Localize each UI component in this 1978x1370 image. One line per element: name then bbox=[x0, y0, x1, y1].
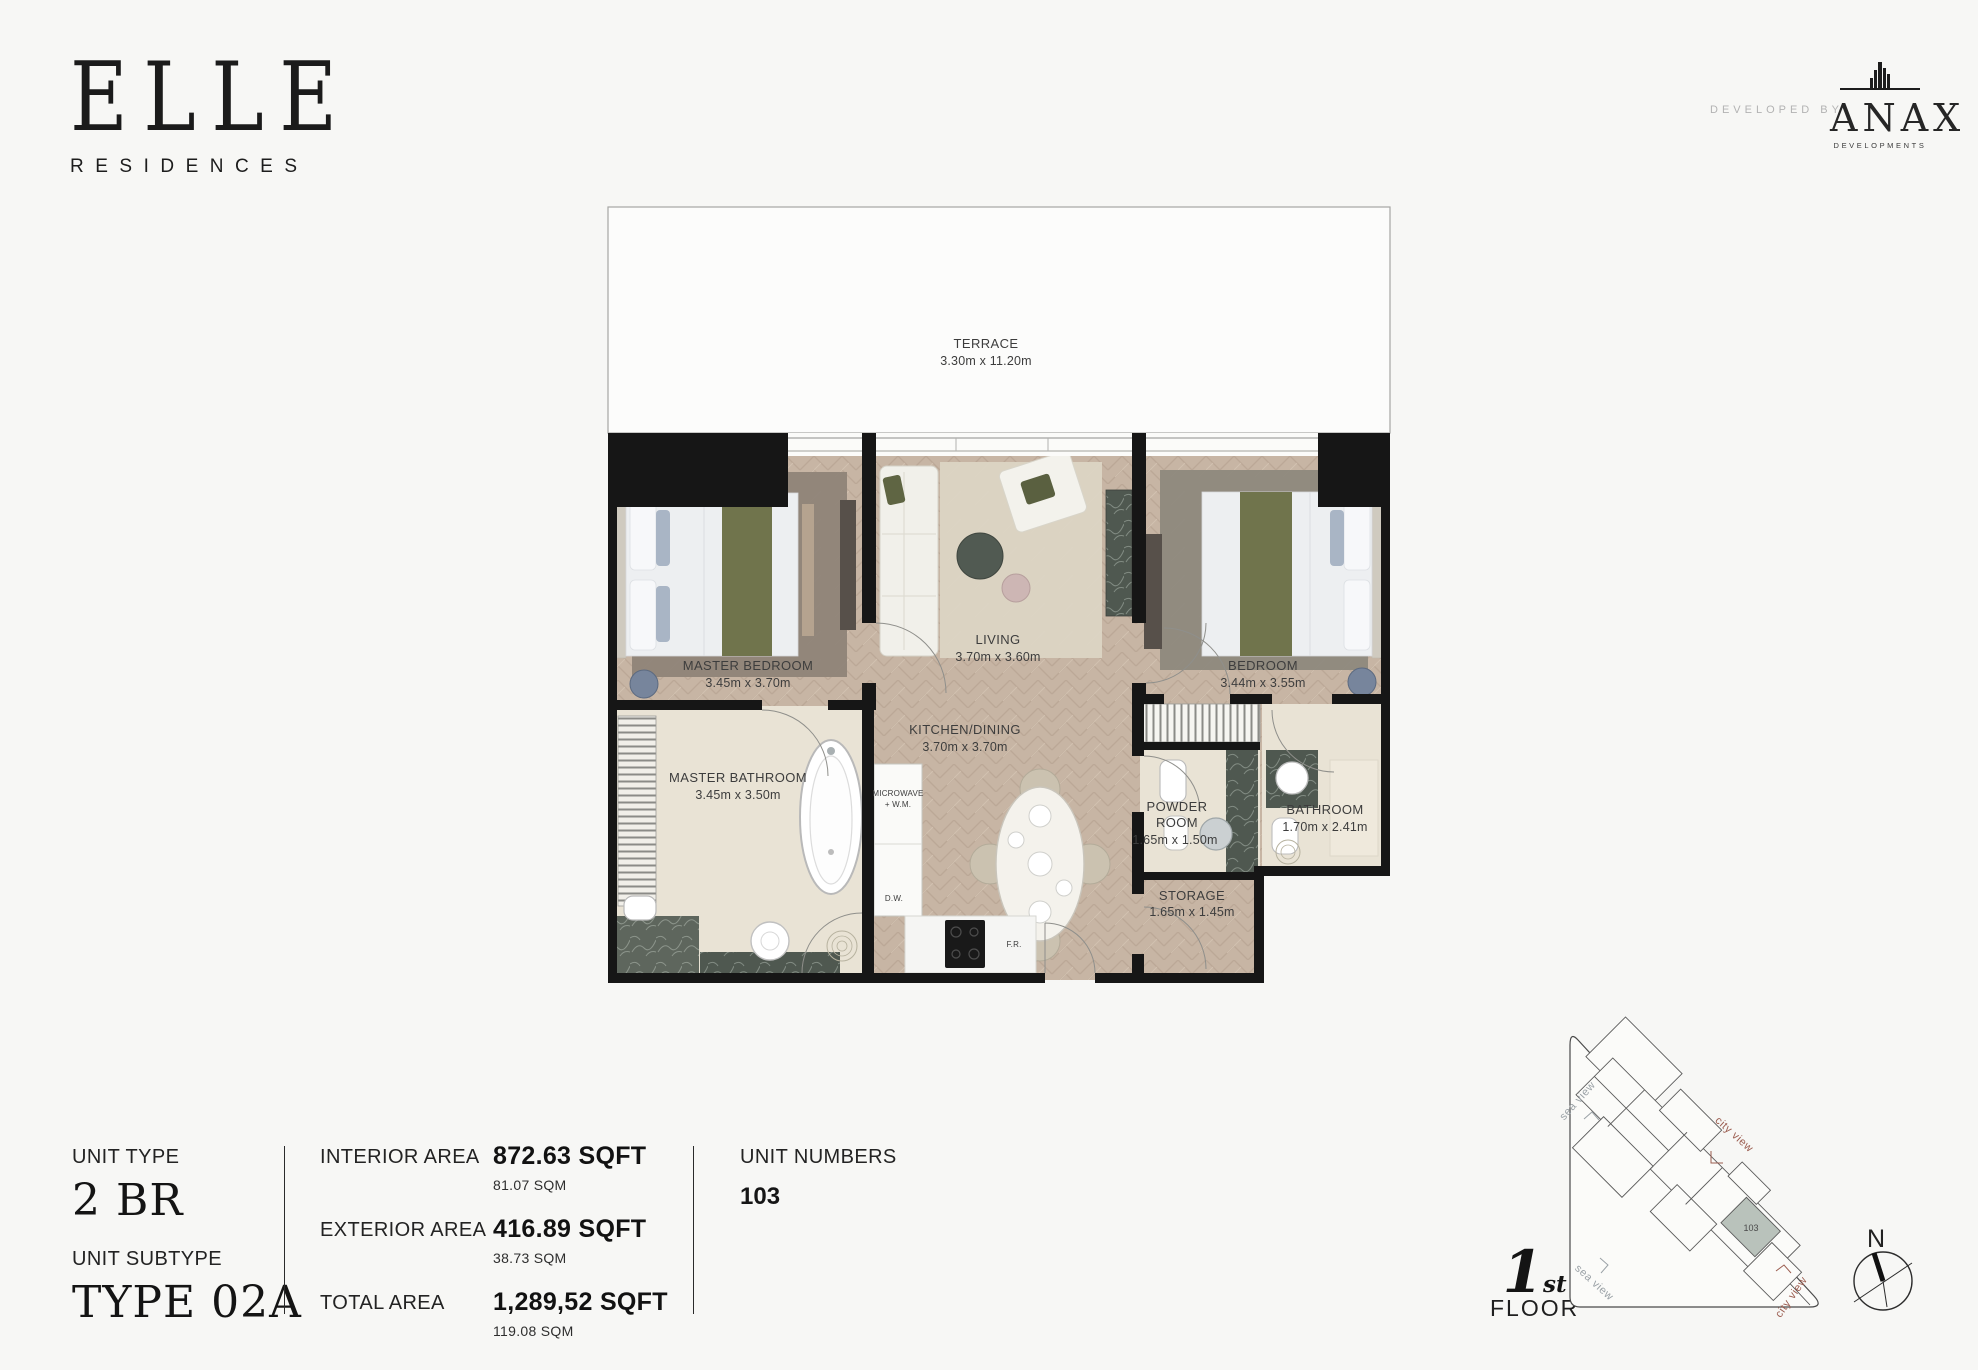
fridge-label: F.R. bbox=[1006, 940, 1021, 949]
developer-name: ANAX bbox=[1830, 99, 1930, 137]
site-mini-map: 103 sea view city view sea view city vie… bbox=[1480, 1015, 1978, 1370]
powder-label-2: ROOM bbox=[1156, 815, 1198, 830]
unit-type-value: 2 BR bbox=[72, 1175, 302, 1226]
exterior-area-sqft: 416.89 SQFT bbox=[493, 1215, 646, 1244]
bathroom-label: BATHROOM bbox=[1286, 802, 1363, 817]
bathroom-dims: 1.70m x 2.41m bbox=[1282, 820, 1367, 834]
powder-dims: 1.65m x 1.50m bbox=[1132, 833, 1217, 847]
interior-area-sqft: 872.63 SQFT bbox=[493, 1142, 646, 1171]
anax-skyline-icon bbox=[1830, 58, 1930, 92]
living-furniture bbox=[880, 450, 1132, 658]
master-bathroom-label: MASTER BATHROOM bbox=[669, 770, 807, 785]
storage-label: STORAGE bbox=[1159, 888, 1225, 903]
brand-logo: ELLE RESIDENCES bbox=[70, 50, 399, 178]
kitchen-dims: 3.70m x 3.70m bbox=[922, 740, 1007, 754]
unit-numbers-value: 103 bbox=[740, 1183, 897, 1211]
powder-label-1: POWDER bbox=[1147, 799, 1208, 814]
compass: N bbox=[1854, 1225, 1912, 1310]
unit-numbers-block: UNIT NUMBERS 103 bbox=[740, 1146, 897, 1211]
unit-type-block: UNIT TYPE 2 BR UNIT SUBTYPE TYPE 02A bbox=[72, 1146, 302, 1328]
bedroom-dims: 3.44m x 3.55m bbox=[1220, 676, 1305, 690]
microwave-label-1: MICROWAVE bbox=[872, 789, 923, 798]
unit-type-label: UNIT TYPE bbox=[72, 1146, 302, 1169]
floor-plan: TERRACE 3.30m x 11.20m bbox=[604, 204, 1394, 1004]
terrace: TERRACE 3.30m x 11.20m bbox=[608, 207, 1390, 433]
exterior-area-label: EXTERIOR AREA bbox=[320, 1219, 493, 1266]
master-bedroom-dims: 3.45m x 3.70m bbox=[705, 676, 790, 690]
living-dims: 3.70m x 3.60m bbox=[955, 650, 1040, 664]
map-unit-number: 103 bbox=[1743, 1223, 1758, 1233]
dishwasher-label: D.W. bbox=[885, 894, 903, 903]
total-area-label: TOTAL AREA bbox=[320, 1292, 493, 1339]
divider-1 bbox=[284, 1146, 285, 1314]
total-area-sqft: 1,289,52 SQFT bbox=[493, 1288, 668, 1317]
brand-name: ELLE bbox=[70, 50, 353, 146]
interior-area-sqm: 81.07 SQM bbox=[493, 1177, 646, 1193]
compass-north-label: N bbox=[1867, 1225, 1885, 1253]
developer-sub: DEVELOPMENTS bbox=[1830, 141, 1930, 150]
kitchen-label: KITCHEN/DINING bbox=[909, 722, 1021, 737]
storage-dims: 1.65m x 1.45m bbox=[1149, 905, 1234, 919]
terrace-dims: 3.30m x 11.20m bbox=[940, 354, 1032, 368]
living-label: LIVING bbox=[975, 632, 1020, 647]
brand-subtitle: RESIDENCES bbox=[70, 156, 399, 178]
master-bedroom-label: MASTER BEDROOM bbox=[683, 658, 814, 673]
city-view-label-top: city view bbox=[1713, 1115, 1756, 1155]
bedroom-label: BEDROOM bbox=[1228, 658, 1298, 673]
microwave-label-2: + W.M. bbox=[885, 800, 911, 809]
exterior-area-sqm: 38.73 SQM bbox=[493, 1250, 646, 1266]
unit-numbers-label: UNIT NUMBERS bbox=[740, 1146, 897, 1169]
area-block: INTERIOR AREA 872.63 SQFT 81.07 SQM EXTE… bbox=[320, 1146, 680, 1339]
terrace-label: TERRACE bbox=[954, 336, 1019, 351]
developed-by-label: DEVELOPED BY bbox=[1710, 104, 1843, 116]
interior-area-label: INTERIOR AREA bbox=[320, 1146, 493, 1193]
total-area-sqm: 119.08 SQM bbox=[493, 1323, 668, 1339]
unit-subtype-value: TYPE 02A bbox=[72, 1277, 302, 1328]
master-bathroom-dims: 3.45m x 3.50m bbox=[695, 788, 780, 802]
unit-subtype-label: UNIT SUBTYPE bbox=[72, 1248, 302, 1271]
divider-2 bbox=[693, 1146, 694, 1314]
